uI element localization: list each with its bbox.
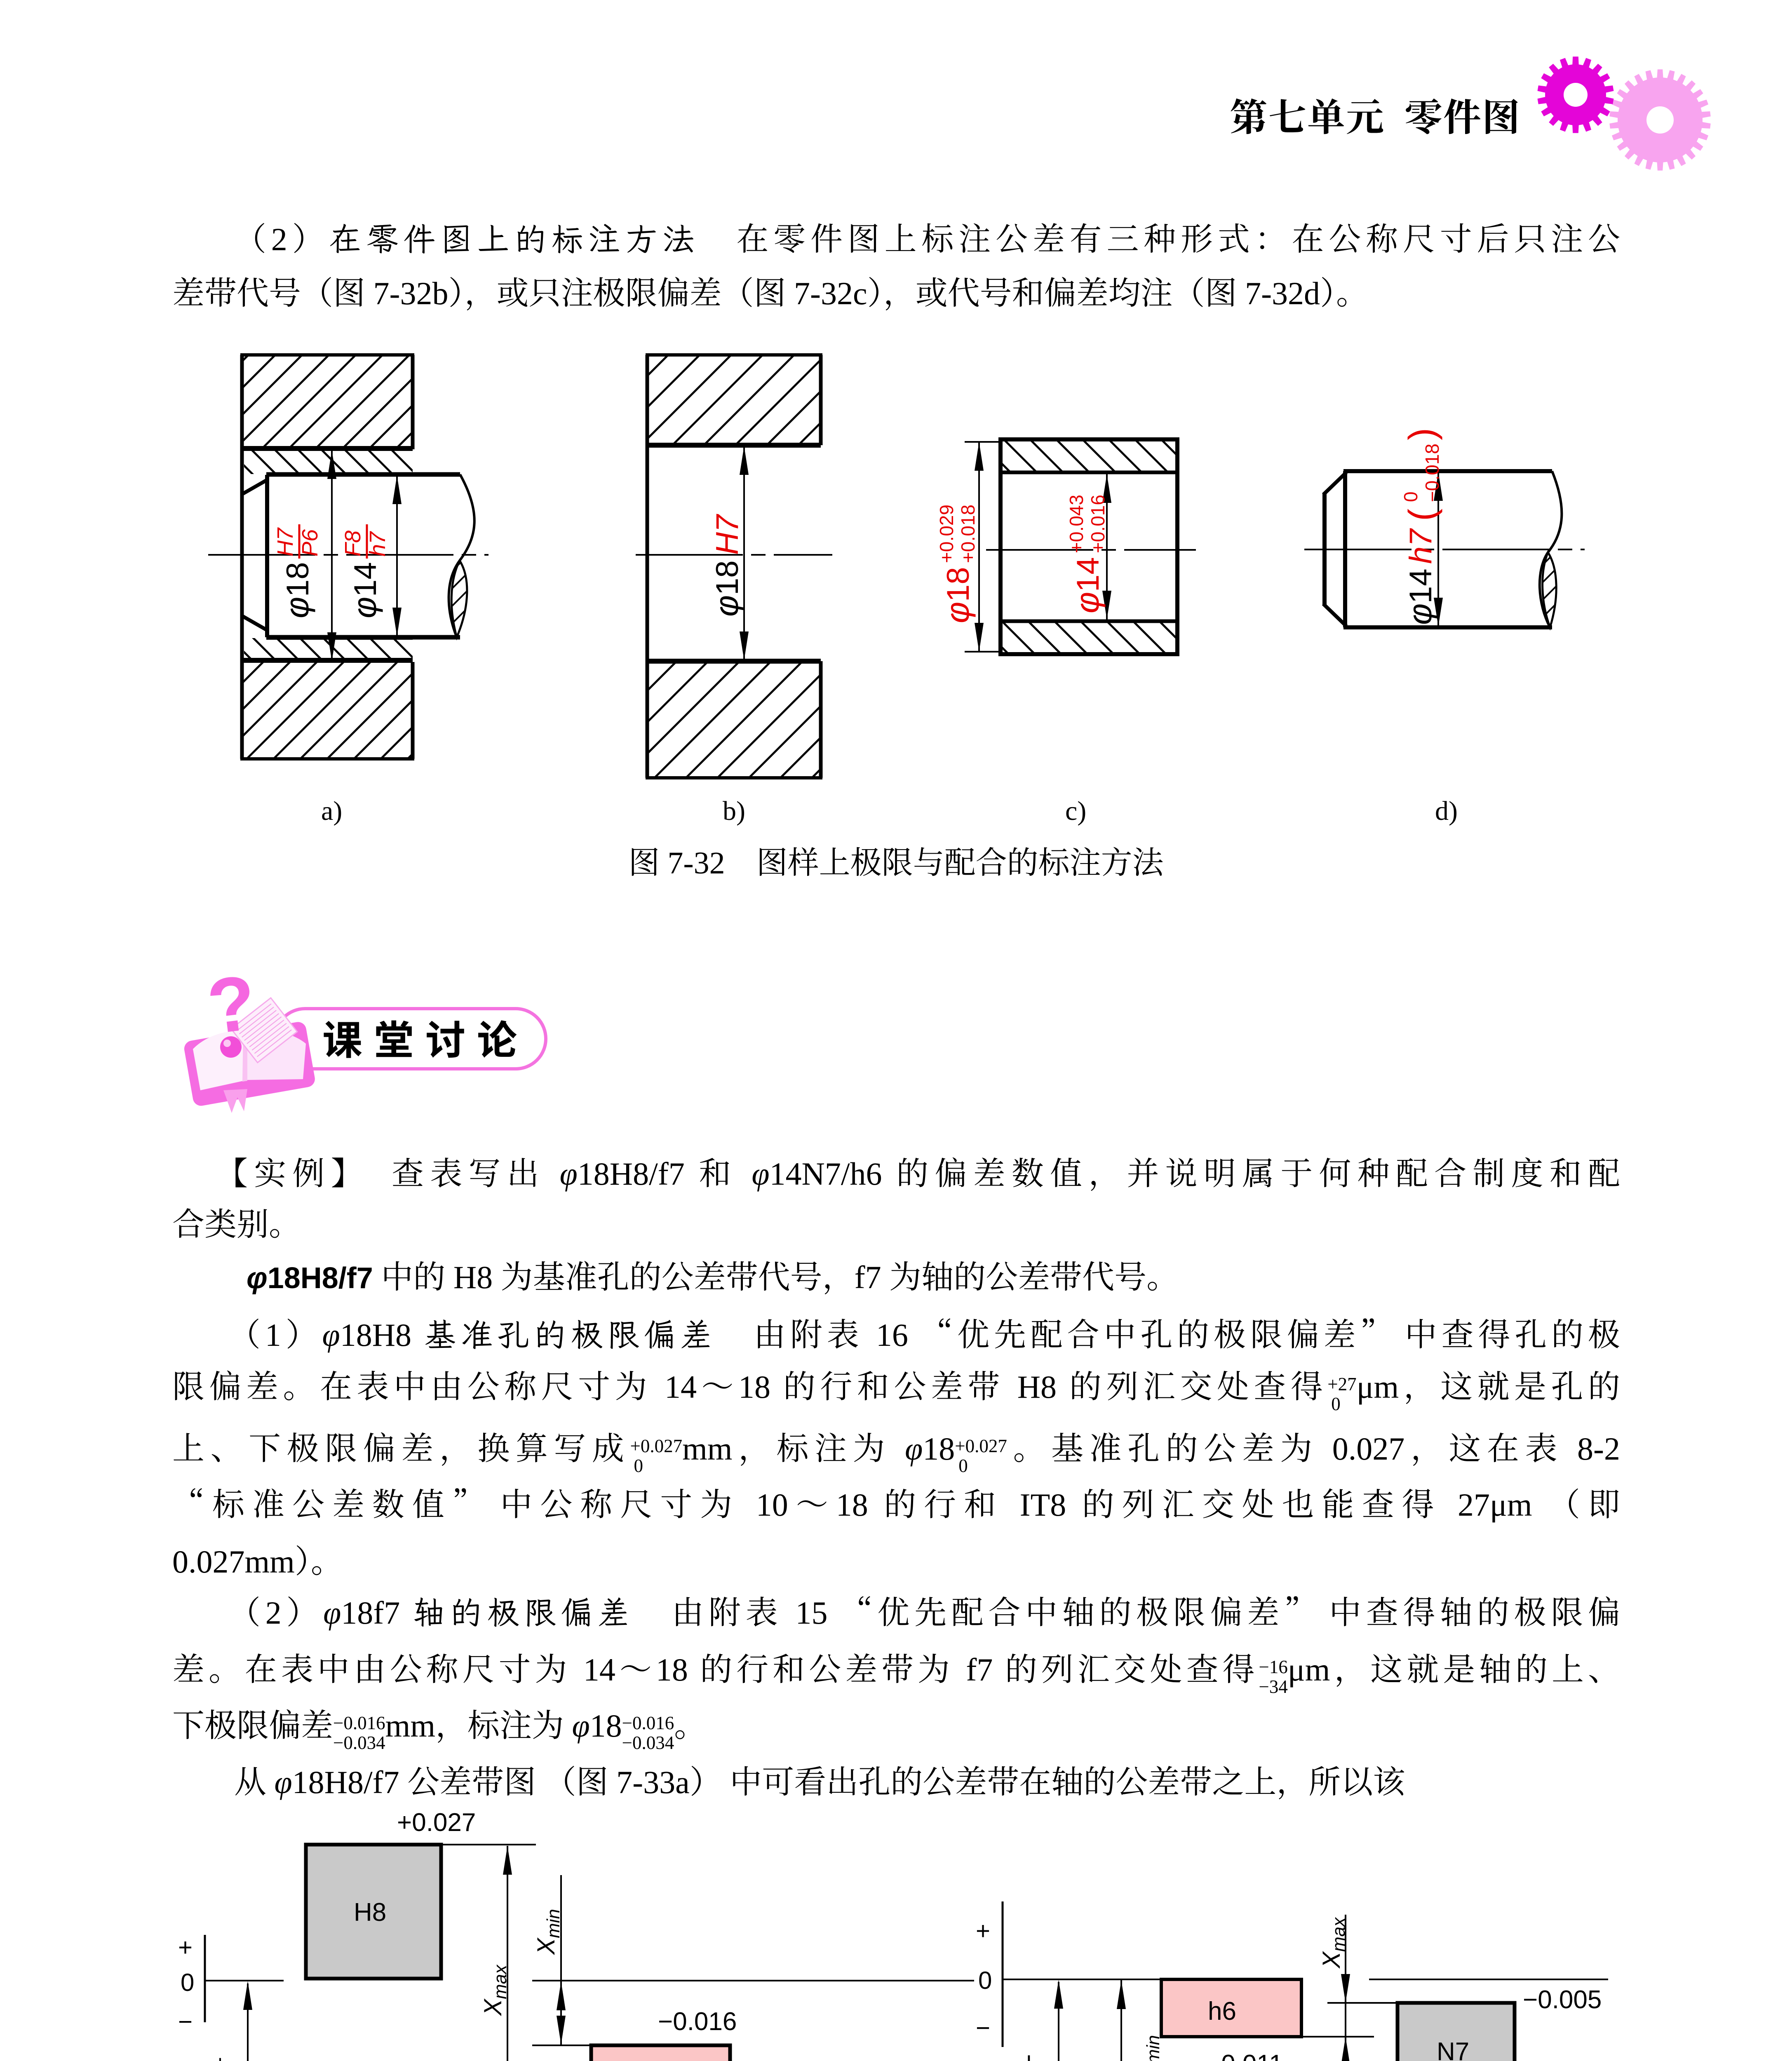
svg-text:+0.029: +0.029 [936,505,957,563]
svg-text:Xmin: Xmin [532,1909,564,1955]
svg-text:+: + [976,1917,990,1945]
svg-text:+0.027: +0.027 [397,1808,476,1837]
svg-text:18: 18 [710,560,745,595]
svg-text:Xmax: Xmax [479,1964,510,2016]
svg-text:14: 14 [1071,557,1106,592]
svg-text:φ: φ [346,597,383,618]
svg-text:18: 18 [941,567,976,602]
svg-text:0: 0 [978,1967,992,1994]
svg-text:+0.016: +0.016 [1087,495,1109,553]
svg-text:+0.018: +0.018 [957,505,979,563]
svg-text:H8: H8 [354,1898,386,1927]
svg-text:0: 0 [1400,491,1421,502]
svg-text:+0.043: +0.043 [1066,495,1087,553]
svg-text:18: 18 [280,562,315,597]
svg-text:公称尺寸: 公称尺寸 [214,2057,238,2061]
svg-text:φ: φ [1069,592,1106,613]
svg-text:−0.011: −0.011 [1206,2050,1283,2061]
svg-text:−: − [976,2014,990,2042]
svg-text:φ: φ [708,595,745,617]
svg-text:φ: φ [279,597,315,618]
svg-text:H7: H7 [710,514,745,555]
svg-text:φ: φ [939,602,976,623]
svg-text:N7: N7 [1437,2038,1469,2061]
svg-text:h7: h7 [365,531,390,556]
svg-text:F8: F8 [341,531,365,556]
svg-text:0: 0 [181,1969,194,1996]
svg-text:h7: h7 [1403,528,1438,564]
svg-text:Ymin: Ymin [1132,2035,1163,2061]
svg-text:h6: h6 [1208,1997,1236,2026]
svg-text:−0.005: −0.005 [1523,1986,1602,2014]
svg-text:+: + [178,1934,193,1961]
svg-text:−0.016: −0.016 [658,2007,737,2036]
svg-text:14: 14 [348,562,383,597]
svg-text:−0.018: −0.018 [1421,444,1443,502]
svg-text:Xmax: Xmax [1318,1917,1349,1969]
svg-text:φ: φ [1402,603,1438,625]
svg-text:−: − [178,2008,193,2035]
svg-text:14: 14 [1403,568,1438,603]
svg-text:(: ( [1402,509,1443,521]
svg-text:H7: H7 [273,527,298,556]
svg-text:公称尺寸: 公称尺寸 [1021,2054,1050,2061]
svg-text:): ) [1402,428,1443,440]
svg-text:P6: P6 [298,529,322,556]
